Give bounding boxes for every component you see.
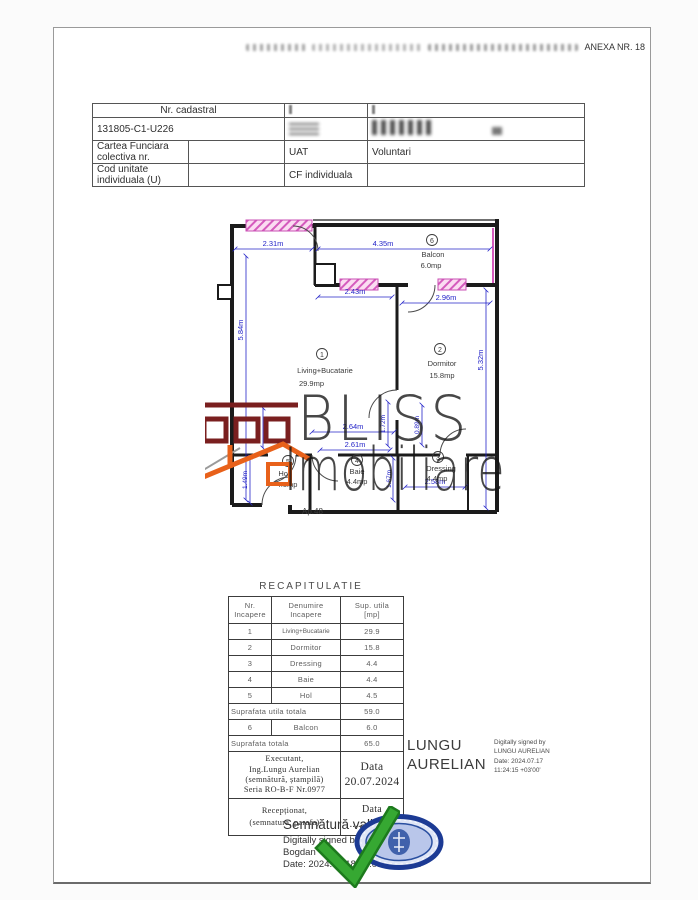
total-value: 65.0 [341, 736, 404, 752]
table-row: 4 Baie 4.4 [229, 672, 404, 688]
row-num: 1 [229, 624, 272, 640]
pen-mark [289, 105, 292, 114]
row-num: 2 [229, 640, 272, 656]
dim-label: 2.43m [345, 287, 366, 296]
row-value: 29.9 [341, 624, 404, 640]
illegible-smudge [246, 44, 306, 51]
room-area: 6.0mp [421, 261, 442, 270]
uat-label: UAT [285, 141, 368, 164]
anexa-number-label: ANEXA NR. 18 [584, 42, 645, 52]
recap-header-nr: Nr. Incapere [229, 597, 272, 624]
dim-label: 5.84m [236, 320, 245, 341]
room-name: Dormitor [428, 359, 457, 368]
room-area: 15.8mp [429, 371, 454, 380]
scanned-cadastral-document: { "page": { "anexa_label": "ANEXA NR. 18… [0, 0, 698, 900]
cf-individuala-label: CF individuala [285, 164, 368, 187]
illegible-stamp [492, 127, 502, 135]
row-name: Hol [272, 688, 341, 704]
header-cell-mark [285, 104, 368, 118]
recap-title: RECAPITULATIE [228, 581, 394, 592]
empty-cell [189, 164, 285, 187]
room-number: 1 [320, 352, 324, 359]
header-cell-mark [368, 104, 585, 118]
nr-cadastral-value: 131805-C1-U226 [93, 118, 285, 141]
table-row: 3 Dressing 4.4 [229, 656, 404, 672]
uat-value: Voluntari [368, 141, 585, 164]
cartea-funciara-label: Cartea Funciara colectiva nr. [93, 141, 189, 164]
total-label: Suprafata totala [229, 736, 341, 752]
dim-label: 2.31m [263, 239, 284, 248]
illegible-smudge [428, 44, 578, 51]
executant-text: Executant, Ing.Lungu Aurelian (semnătură… [229, 752, 341, 799]
illegible-stamp [372, 120, 432, 135]
subtotal-value: 59.0 [341, 704, 404, 720]
row-name: Living+Bucatarie [272, 624, 341, 640]
pen-mark [372, 105, 375, 114]
total-row: Suprafata totala 65.0 [229, 736, 404, 752]
empty-cell [368, 164, 585, 187]
table-row: 1 Living+Bucatarie 29.9 [229, 624, 404, 640]
row-value: 4.5 [341, 688, 404, 704]
cadastral-header-table: Nr. cadastral 131805-C1-U226 Cartea Func… [92, 103, 585, 187]
dim-label: 4.35m [373, 239, 394, 248]
row-num: 5 [229, 688, 272, 704]
row-name: Baie [272, 672, 341, 688]
row-name: Dressing [272, 656, 341, 672]
row-num: 6 [229, 720, 272, 736]
room-number: 6 [430, 238, 434, 245]
table-row: 2 Dormitor 15.8 [229, 640, 404, 656]
window-hatch [246, 220, 312, 231]
illegible-smudge [312, 44, 422, 51]
dim-label: 5.32m [476, 350, 485, 371]
room-label-balcon: 6 Balcon 6.0mp [421, 235, 445, 271]
row-value: 4.4 [341, 672, 404, 688]
recap-table: Nr. Incapere Denumire Incapere Sup. util… [228, 596, 404, 836]
window-hatches [246, 220, 493, 290]
stamp-cell [285, 118, 368, 141]
window-hatch [438, 279, 466, 290]
row-num: 4 [229, 672, 272, 688]
engineer-signature-block: LUNGU AURELIAN Digitally signed by LUNGU… [407, 737, 550, 775]
illegible-stamp [289, 121, 319, 135]
executant-date: Data 20.07.2024 [341, 752, 404, 799]
room-name: Living+Bucatarie [297, 366, 353, 375]
watermark-line2: Imobiliare [284, 440, 505, 500]
stamp-cell [368, 118, 585, 141]
row-value: 6.0 [341, 720, 404, 736]
top-annotation-row: ANEXA NR. 18 [195, 40, 645, 54]
room-name: Balcon [422, 250, 445, 259]
dim-label: 2.96m [436, 293, 457, 302]
row-value: 4.4 [341, 656, 404, 672]
apartment-number-label: Ap.48 [302, 507, 323, 516]
row-name: Balcon [272, 720, 341, 736]
room-label-dormitor: 2 Dormitor 15.8mp [428, 344, 457, 381]
table-row: 5 Hol 4.5 [229, 688, 404, 704]
table-row: 6 Balcon 6.0 [229, 720, 404, 736]
engineer-signature-details: Digitally signed by LUNGU AURELIAN Date:… [494, 737, 550, 775]
recap-header-sup: Sup. utila [mp] [341, 597, 404, 624]
subtotal-label: Suprafata utila totala [229, 704, 341, 720]
cod-unitate-label: Cod unitate individuala (U) [93, 164, 189, 187]
nr-cadastral-label: Nr. cadastral [93, 104, 285, 118]
executant-row: Executant, Ing.Lungu Aurelian (semnătură… [229, 752, 404, 799]
row-name: Dormitor [272, 640, 341, 656]
empty-cell [189, 141, 285, 164]
row-value: 15.8 [341, 640, 404, 656]
green-checkmark-icon [314, 806, 400, 888]
engineer-signature-name: LUNGU AURELIAN [407, 737, 486, 775]
room-number: 2 [438, 347, 442, 354]
row-num: 3 [229, 656, 272, 672]
door-arc [408, 285, 435, 312]
recap-header-denumire: Denumire Incapere [272, 597, 341, 624]
dim-label: 1.49m [242, 471, 249, 489]
subtotal-row: Suprafata utila totala 59.0 [229, 704, 404, 720]
